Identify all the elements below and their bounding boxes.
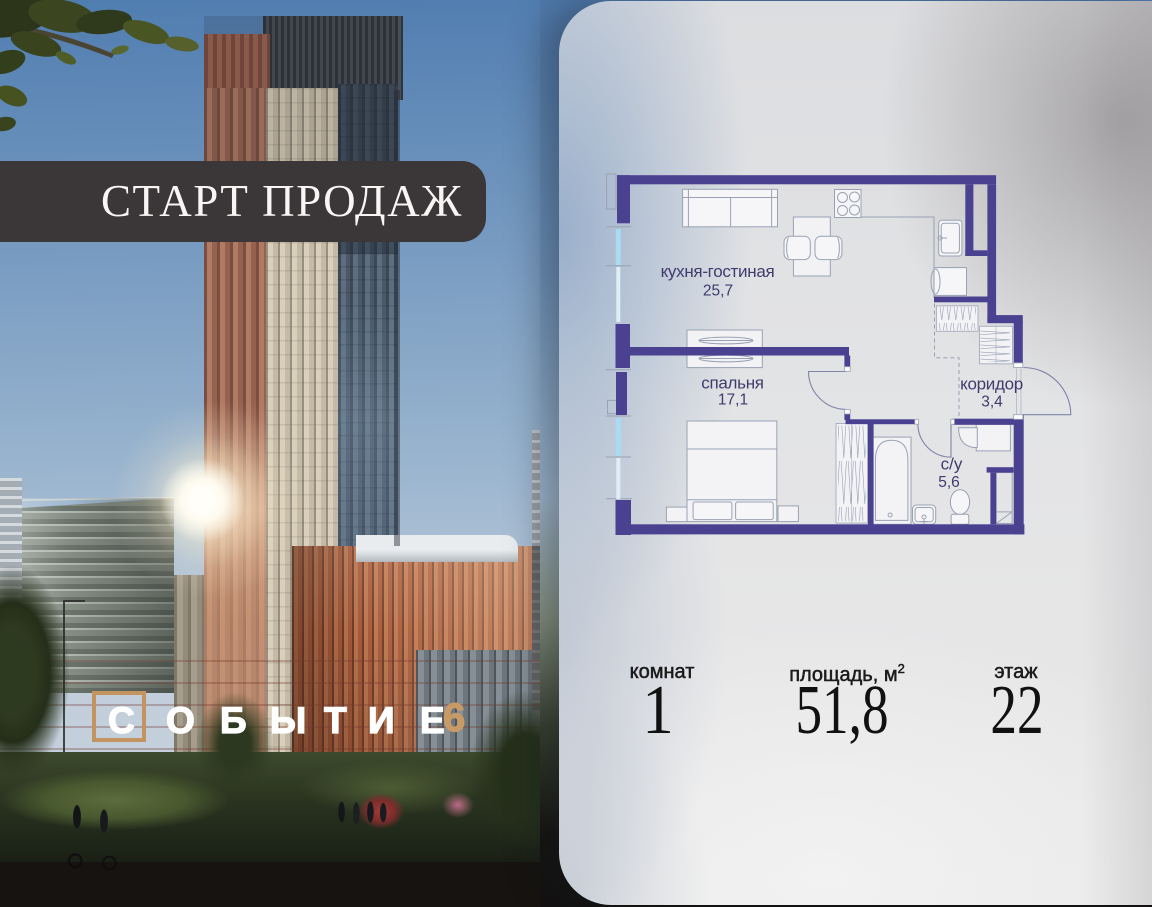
svg-text:коридор: коридор [960,375,1023,394]
svg-text:спальня: спальня [701,374,764,393]
svg-text:5,6: 5,6 [938,474,960,491]
svg-text:с/у: с/у [941,455,963,474]
svg-text:кухня-гостиная: кухня-гостиная [661,262,775,281]
svg-text:3,4: 3,4 [981,394,1003,411]
svg-text:17,1: 17,1 [718,392,748,409]
svg-text:25,7: 25,7 [703,283,733,300]
